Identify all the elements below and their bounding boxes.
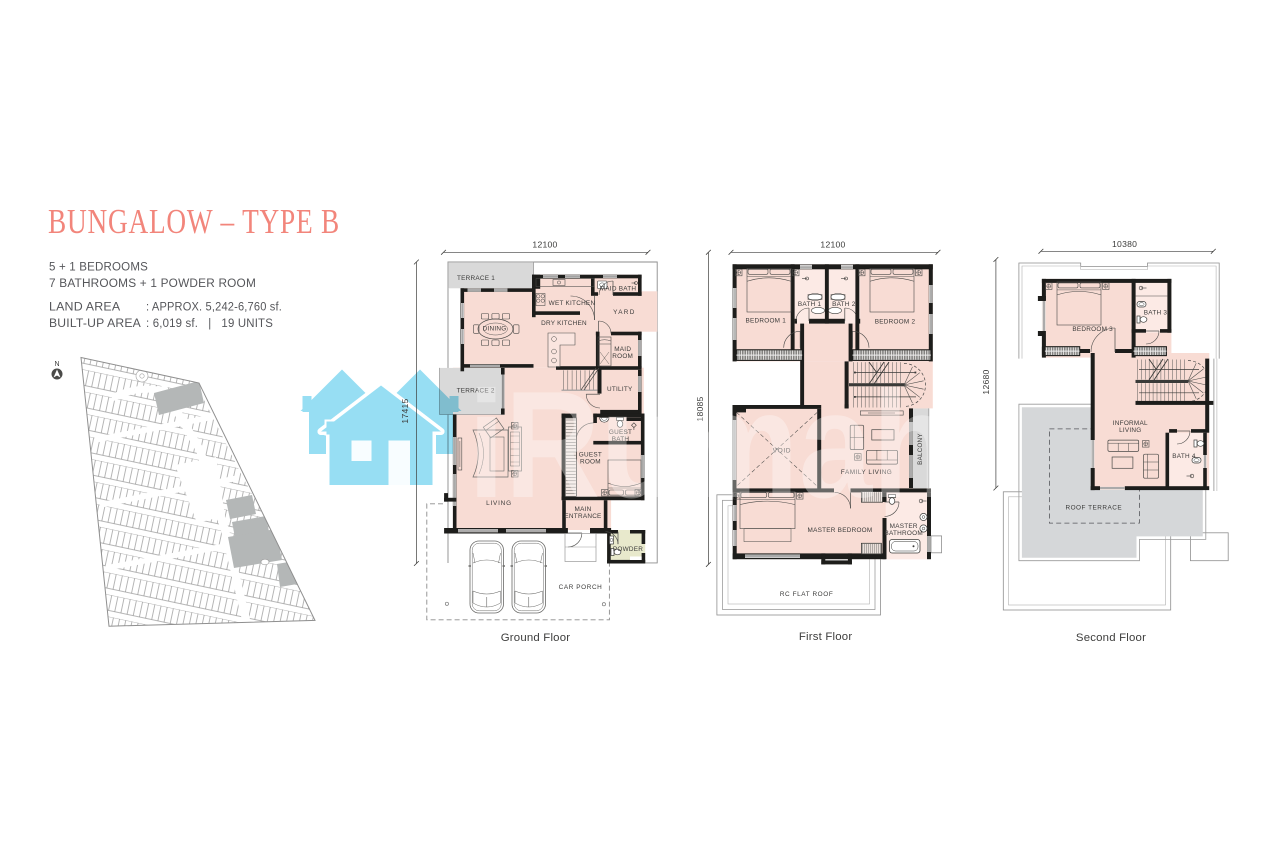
svg-text:DINING: DINING: [483, 326, 507, 333]
svg-text:BEDROOM 2: BEDROOM 2: [875, 319, 916, 326]
svg-text:12100: 12100: [532, 240, 557, 250]
svg-text:First Floor: First Floor: [799, 631, 852, 643]
svg-text:DRY KITCHEN: DRY KITCHEN: [541, 320, 587, 327]
svg-text:5 + 1 BEDROOMS: 5 + 1 BEDROOMS: [49, 260, 148, 274]
svg-text:TERRACE 1: TERRACE 1: [457, 275, 495, 282]
svg-text:MAID BATH: MAID BATH: [600, 286, 637, 293]
svg-text:POWDER: POWDER: [613, 546, 643, 553]
svg-text:iRumah: iRumah: [468, 360, 953, 530]
svg-text:ROOM: ROOM: [612, 353, 633, 360]
svg-text:BEDROOM 1: BEDROOM 1: [745, 318, 786, 325]
svg-text:LAND AREA: LAND AREA: [49, 300, 121, 314]
svg-text:ROOF TERRACE: ROOF TERRACE: [1065, 504, 1122, 511]
svg-text:BUILT-UP AREA: BUILT-UP AREA: [49, 316, 142, 330]
svg-text:12680: 12680: [981, 369, 991, 394]
svg-text:LIVING: LIVING: [1119, 427, 1141, 434]
svg-text:BUNGALOW – TYPE B: BUNGALOW – TYPE B: [48, 202, 340, 241]
svg-text:Second Floor: Second Floor: [1076, 632, 1146, 644]
svg-text:BATH 2: BATH 2: [832, 301, 856, 308]
svg-text:Ground Floor: Ground Floor: [501, 632, 571, 644]
svg-text:YARD: YARD: [613, 309, 635, 316]
svg-text:BATH 1: BATH 1: [798, 301, 822, 308]
svg-text:RC FLAT ROOF: RC FLAT ROOF: [780, 591, 833, 598]
svg-text:WET KITCHEN: WET KITCHEN: [549, 300, 596, 307]
svg-text:BATH 3: BATH 3: [1144, 309, 1168, 316]
svg-text:: 6,019 sf. | 19 UNITS: : 6,019 sf. | 19 UNITS: [146, 316, 273, 330]
svg-text:CAR PORCH: CAR PORCH: [559, 584, 603, 591]
svg-text:10380: 10380: [1112, 239, 1137, 249]
svg-text:: APPROX. 5,242-6,760 sf.: : APPROX. 5,242-6,760 sf.: [146, 300, 282, 314]
svg-text:MAID: MAID: [614, 346, 631, 353]
svg-text:N: N: [54, 361, 59, 368]
svg-text:7 BATHROOMS + 1 POWDER ROOM: 7 BATHROOMS + 1 POWDER ROOM: [49, 276, 256, 290]
svg-text:17415: 17415: [400, 398, 410, 423]
svg-text:BATHROOM: BATHROOM: [884, 530, 922, 537]
svg-text:BEDROOM 3: BEDROOM 3: [1072, 326, 1113, 333]
svg-text:12100: 12100: [820, 240, 845, 250]
svg-text:INFORMAL: INFORMAL: [1113, 420, 1148, 427]
svg-text:BATH 4: BATH 4: [1172, 453, 1196, 460]
